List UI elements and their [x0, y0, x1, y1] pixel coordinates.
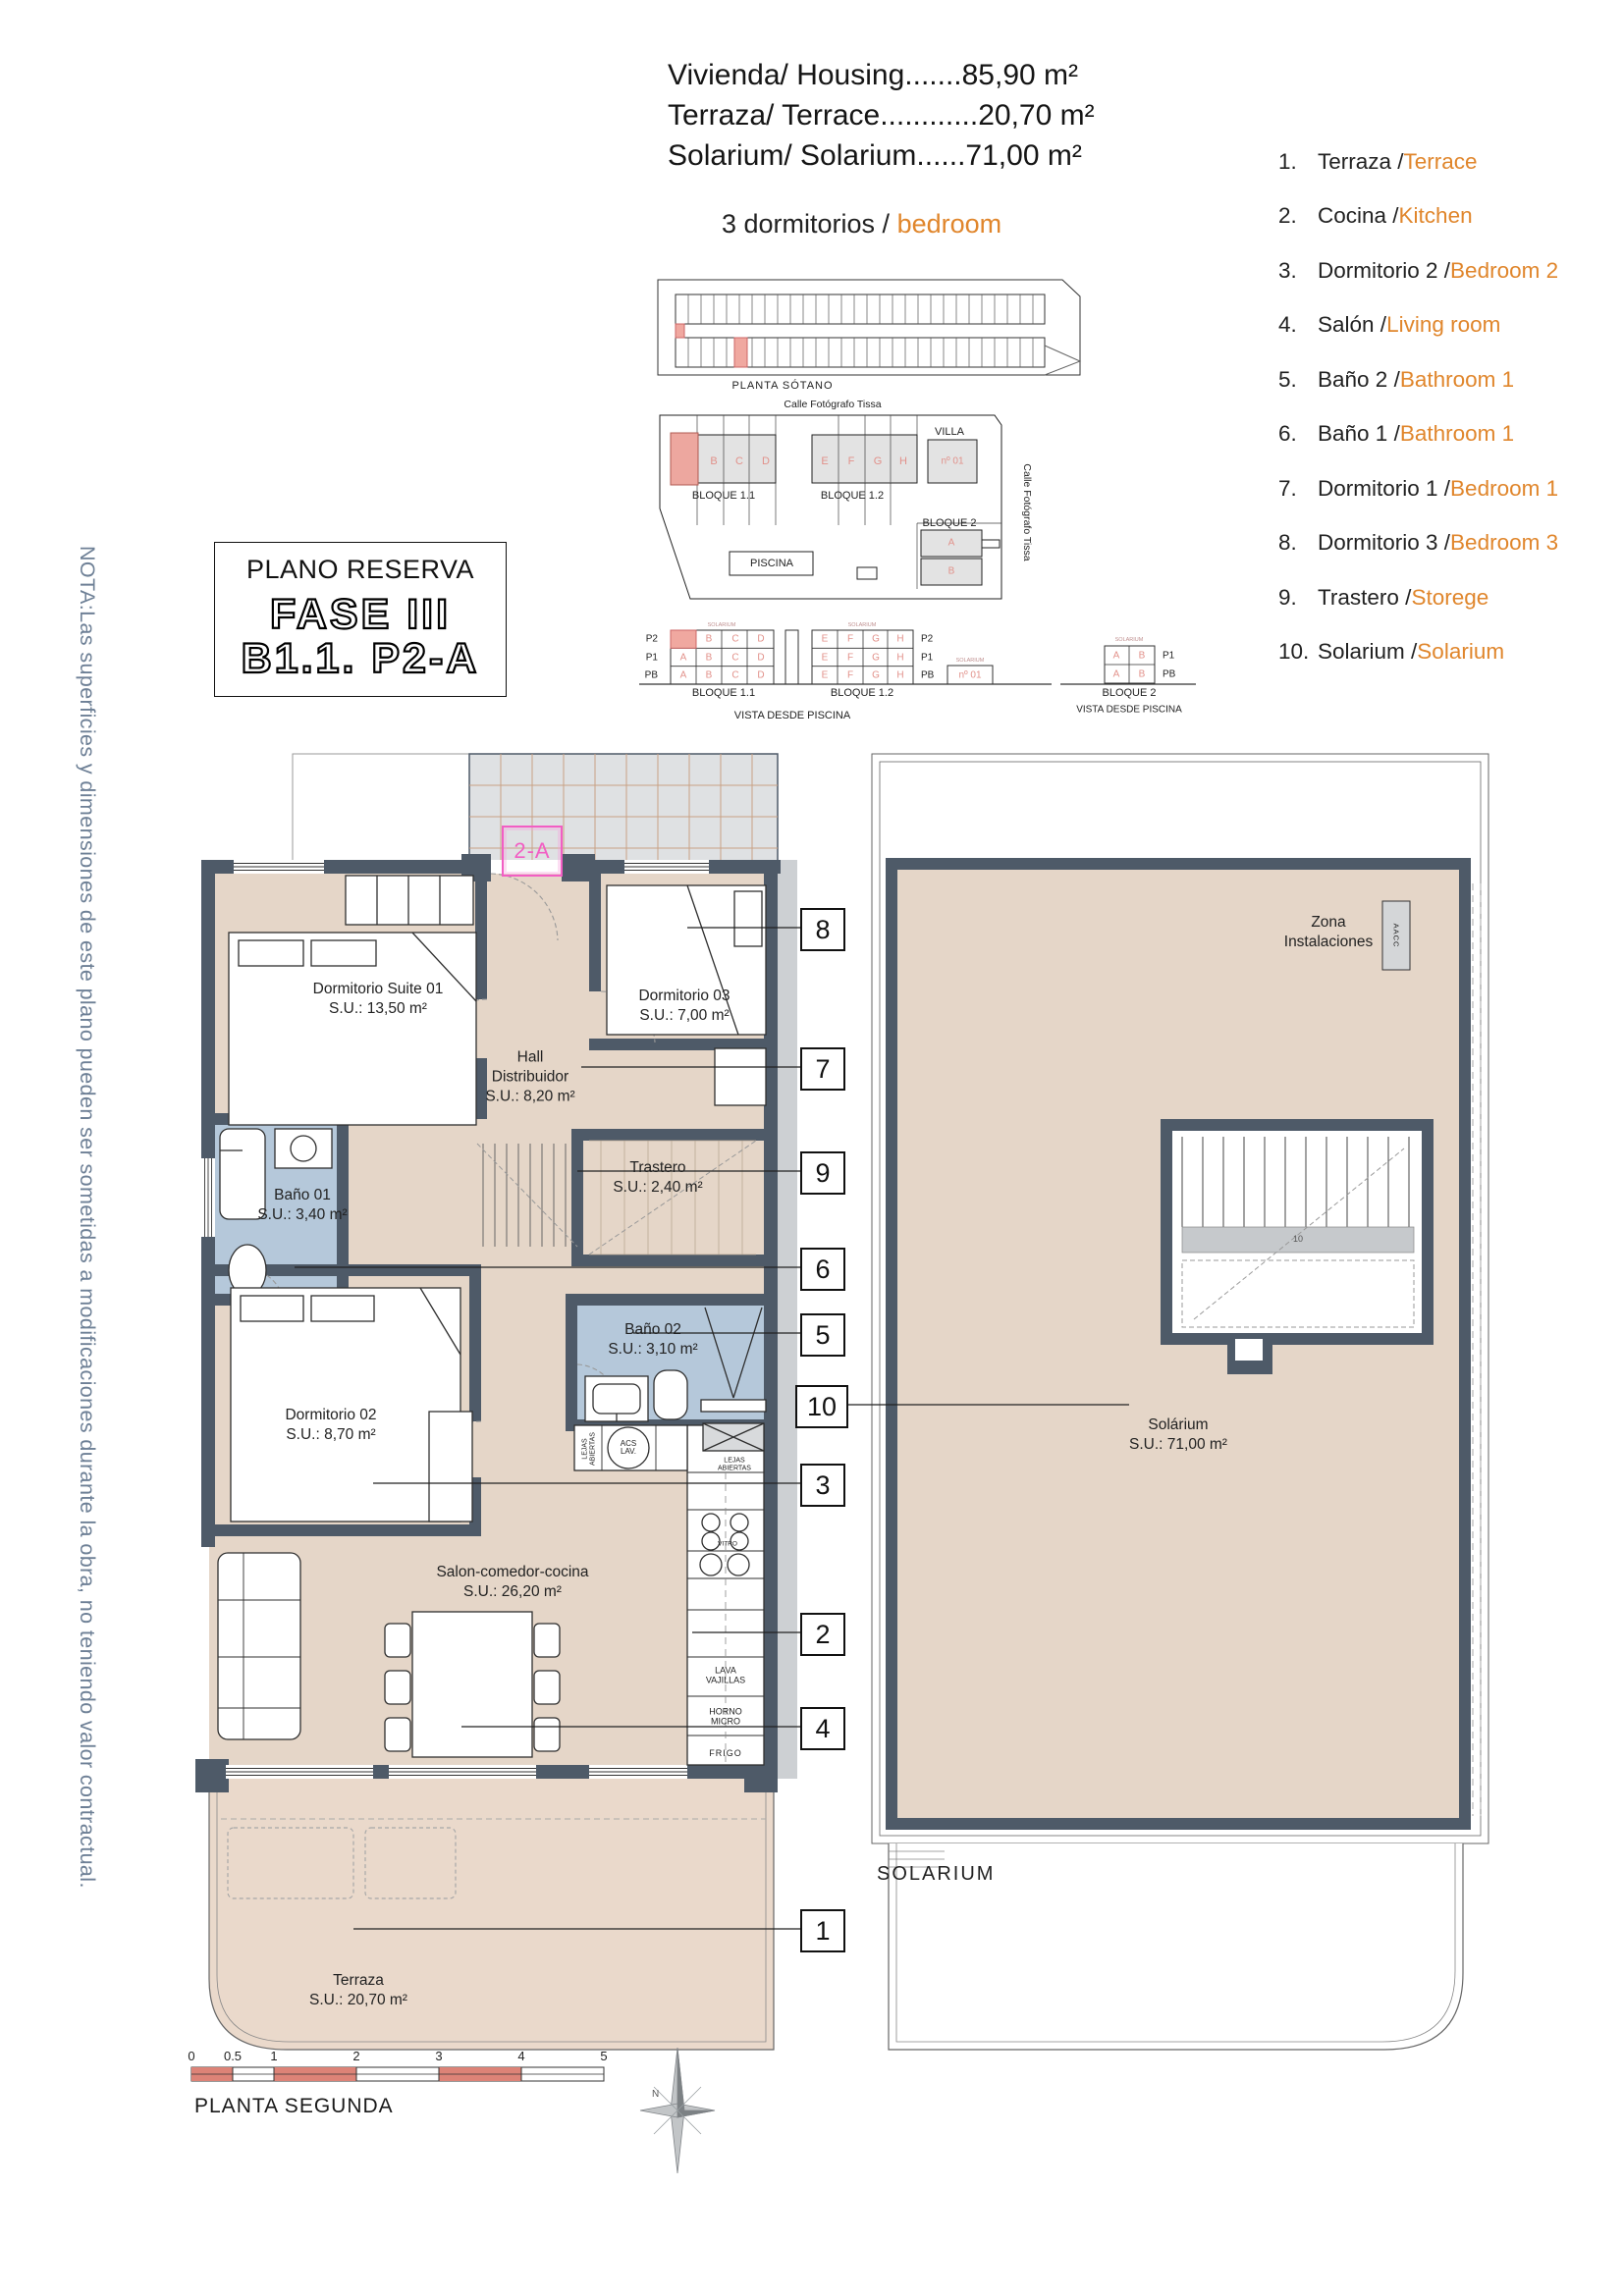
legend-item: 9.Trastero / Storege [1278, 585, 1488, 611]
elev-letter: E [822, 653, 829, 664]
terrace [209, 1777, 774, 2050]
unit-letter: B [710, 455, 717, 467]
elev-letter: A [680, 653, 687, 664]
bedrooms-subtitle: 3 dormitorios / bedroom [722, 209, 1001, 240]
solarium [872, 754, 1488, 2050]
site-plan-sotano [658, 280, 1080, 375]
unit-letter: A [948, 538, 955, 549]
elev-letter: G [872, 634, 880, 645]
elev-letter: H [896, 670, 903, 681]
room-label-dorm3: Dormitorio 03S.U.: 7,00 m² [638, 987, 730, 1026]
room-label-trastero: TrasteroS.U.: 2,40 m² [613, 1158, 702, 1198]
vista-label: VISTA DESDE PISCINA [734, 710, 850, 721]
legend-item: 6.Baño 1 / Bathroom 1 [1278, 421, 1514, 447]
scale-tick: 3 [435, 2049, 442, 2063]
legend-item: 5.Baño 2 / Bathroom 1 [1278, 367, 1514, 393]
elev-letter: B [1139, 669, 1146, 680]
floor-label: P1 [646, 653, 658, 664]
elev-letter: C [731, 653, 738, 664]
room-label-terraza: TerrazaS.U.: 20,70 m² [309, 1971, 407, 2010]
elev-letter: B [706, 634, 713, 645]
piscina-label: PISCINA [750, 558, 793, 569]
elev-letter: D [757, 670, 764, 681]
bloque12-label: BLOQUE 1.2 [821, 490, 884, 502]
stair-number: 10 [1293, 1234, 1303, 1244]
elev-letter: D [757, 634, 764, 645]
unit-letter: F [848, 455, 855, 467]
room-label-solarium: SoláriumS.U.: 71,00 m² [1129, 1415, 1227, 1455]
legend-item: 8.Dormitorio 3 / Bedroom 3 [1278, 530, 1558, 556]
callout-8: 8 [800, 908, 845, 951]
unit-letter: C [735, 455, 743, 467]
elev-letter: B [1139, 651, 1146, 662]
elev-letter: H [896, 634, 903, 645]
fixture-lavavajillas: LAVA VAJILLAS [700, 1666, 751, 1686]
room-label-salon: Salon-comedor-cocinaS.U.: 26,20 m² [436, 1563, 588, 1602]
solarium-tiny-label: SOLARIUM [956, 658, 985, 664]
room-label-suite: Dormitorio Suite 01S.U.: 13,50 m² [313, 980, 444, 1019]
elev-letter: C [731, 634, 738, 645]
title-block: PLANO RESERVA FASE III B1.1. P2-A [214, 542, 507, 697]
floor-label: P1 [1163, 651, 1174, 662]
callout-5: 5 [800, 1313, 845, 1357]
room-label-dorm2: Dormitorio 02S.U.: 8,70 m² [285, 1406, 376, 1445]
fixture-lejas-vertical: LEJAS ABIERTAS [581, 1421, 596, 1476]
fixture-lejas: LEJAS ABIERTAS [715, 1457, 754, 1471]
callout-2: 2 [800, 1613, 845, 1656]
subtitle-en: bedroom [897, 209, 1002, 239]
floor-label: P2 [646, 634, 658, 645]
legend-item: 7.Dormitorio 1 / Bedroom 1 [1278, 476, 1558, 502]
scale-tick: 0.5 [224, 2049, 242, 2063]
fixture-horno-micro: HORNO MICRO [703, 1707, 748, 1728]
villa-label: VILLA [935, 426, 964, 438]
floor-label: P2 [921, 634, 933, 645]
legend-item: 1.Terraza / Terrace [1278, 149, 1478, 175]
summary-solarium: Solarium/ Solarium......71,00 m² [668, 135, 1095, 176]
bloque11-label: BLOQUE 1.1 [692, 490, 755, 502]
street-right-label: Calle Fotógrafo Tissa [1021, 463, 1033, 561]
solarium-section-label: SOLARIUM [877, 1863, 995, 1886]
elev-letter: G [872, 653, 880, 664]
elev-bloque12-label: BLOQUE 1.2 [831, 687, 893, 699]
legend-item: 3.Dormitorio 2 / Bedroom 2 [1278, 258, 1558, 284]
elev-letter: F [847, 670, 853, 681]
plan-title: PLANTA SEGUNDA [194, 2095, 394, 2118]
callout-3: 3 [800, 1464, 845, 1507]
scale-tick: 4 [517, 2049, 524, 2063]
unit-letter: G [874, 455, 883, 467]
scale-bar [191, 2067, 604, 2081]
elev-bloque11-label: BLOQUE 1.1 [692, 687, 755, 699]
street-top-label: Calle Fotógrafo Tissa [784, 399, 881, 410]
room-label-bano2: Baño 02S.U.: 3,10 m² [608, 1320, 697, 1360]
elev-letter: A [1113, 651, 1120, 662]
room-label-zona-instalaciones: ZonaInstalaciones [1284, 913, 1373, 952]
legend-item: 4.Salón / Living room [1278, 312, 1500, 338]
fixture-acs: ACS LAV. [612, 1440, 645, 1456]
villa-num: nº 01 [941, 456, 963, 467]
unit-letter: E [821, 455, 828, 467]
callout-6: 6 [800, 1248, 845, 1291]
callout-10: 10 [795, 1385, 848, 1428]
fixture-vitro: VITRO [718, 1541, 737, 1548]
title-block-unit: B1.1. P2-A [215, 637, 506, 681]
callout-7: 7 [800, 1047, 845, 1091]
room-label-hall: HallDistribuidorS.U.: 8,20 m² [485, 1047, 574, 1105]
compass-rose [640, 2048, 715, 2173]
elev-letter: A [680, 670, 687, 681]
summary-terrace: Terraza/ Terrace............20,70 m² [668, 95, 1095, 135]
floor-plan-sheet: NOTA:Las superficies y dimensiones de es… [0, 0, 1623, 2296]
solarium-tiny-label: SOLARIUM [708, 622, 736, 628]
scale-tick: 0 [188, 2049, 194, 2063]
sotano-label: PLANTA SÓTANO [731, 380, 833, 392]
north-label: N [652, 2089, 659, 2100]
elev-letter: G [872, 670, 880, 681]
legend-item: 10.Solarium / Solarium [1278, 639, 1504, 665]
bloque2-label: BLOQUE 2 [922, 517, 976, 529]
unit-tag: 2-A [502, 826, 563, 877]
vista-label: VISTA DESDE PISCINA [1076, 705, 1182, 716]
elev-letter: D [757, 653, 764, 664]
floor-label: P1 [921, 653, 933, 664]
elev-letter: H [896, 653, 903, 664]
elev-letter: C [731, 670, 738, 681]
fixture-aacc: AACC [1392, 924, 1401, 948]
scale-tick: 1 [270, 2049, 277, 2063]
area-summary: Vivienda/ Housing.......85,90 m² Terraza… [668, 55, 1095, 176]
elev-bloque2-label: BLOQUE 2 [1102, 687, 1156, 699]
floor-label: PB [645, 670, 658, 681]
unit-letter: D [762, 455, 770, 467]
disclaimer-note: NOTA:Las superficies y dimensiones de es… [75, 546, 99, 1889]
callout-4: 4 [800, 1707, 845, 1750]
summary-housing: Vivienda/ Housing.......85,90 m² [668, 55, 1095, 95]
title-block-fase: FASE III [215, 593, 506, 637]
elev-letter: A [1113, 669, 1120, 680]
solarium-tiny-label: SOLARIUM [1115, 637, 1144, 643]
floor-label: PB [921, 670, 934, 681]
scale-tick: 2 [352, 2049, 359, 2063]
fixture-frigo: FRIGO [709, 1748, 742, 1758]
subtitle-es: 3 dormitorios / [722, 209, 897, 239]
elev-letter: F [847, 653, 853, 664]
elev-letter: B [706, 670, 713, 681]
scale-tick: 5 [600, 2049, 607, 2063]
elev-villa-num: nº 01 [958, 670, 981, 681]
floor-label: PB [1163, 669, 1175, 680]
callout-1: 1 [800, 1909, 845, 1952]
room-label-bano1: Baño 01S.U.: 3,40 m² [257, 1186, 347, 1225]
unit-letter: B [948, 566, 955, 577]
elev-letter: F [847, 634, 853, 645]
legend-item: 2.Cocina / Kitchen [1278, 203, 1473, 229]
title-block-title: PLANO RESERVA [215, 555, 506, 585]
elev-letter: E [822, 634, 829, 645]
elev-letter: B [706, 653, 713, 664]
solarium-tiny-label: SOLARIUM [848, 622, 877, 628]
elev-letter: E [822, 670, 829, 681]
unit-letter: H [899, 455, 907, 467]
callout-9: 9 [800, 1151, 845, 1195]
